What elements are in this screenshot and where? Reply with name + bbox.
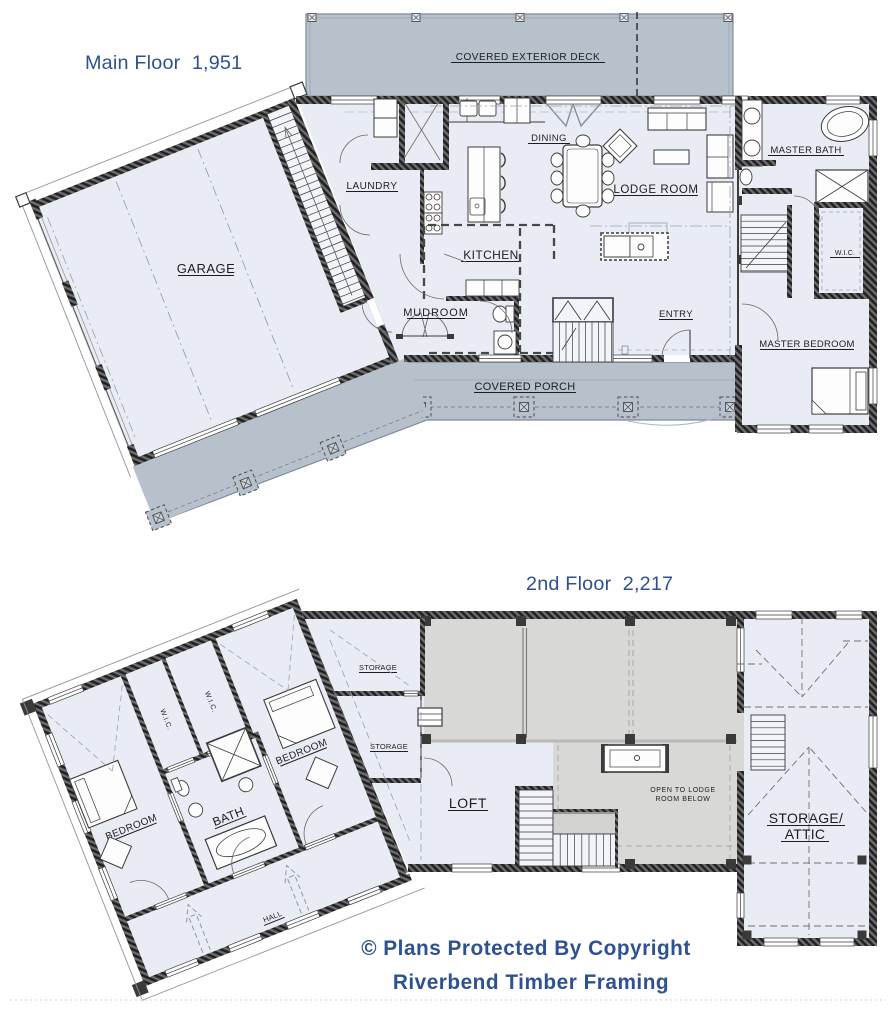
svg-text:STORAGE: STORAGE [370, 742, 408, 751]
svg-text:MASTER BATH: MASTER BATH [770, 145, 841, 156]
svg-text:Riverbend Timber Framing: Riverbend Timber Framing [393, 971, 669, 994]
svg-text:COVERED PORCH: COVERED PORCH [474, 381, 575, 393]
svg-text:LOFT: LOFT [449, 795, 487, 811]
svg-text:2nd Floor 2,217: 2nd Floor 2,217 [526, 573, 673, 595]
svg-text:LODGE ROOM: LODGE ROOM [613, 184, 698, 196]
svg-text:W.I.C.: W.I.C. [835, 250, 855, 257]
svg-text:KITCHEN: KITCHEN [463, 248, 518, 262]
svg-text:ROOM BELOW: ROOM BELOW [655, 796, 710, 803]
svg-text:STORAGE/: STORAGE/ [769, 810, 844, 826]
svg-text:MUDROOM: MUDROOM [403, 307, 469, 319]
svg-text:Main Floor 1,951: Main Floor 1,951 [85, 52, 242, 74]
svg-text:LAUNDRY: LAUNDRY [346, 181, 397, 192]
svg-text:COVERED EXTERIOR DECK: COVERED EXTERIOR DECK [456, 52, 600, 63]
svg-text:ATTIC: ATTIC [785, 826, 825, 842]
svg-text:MASTER BEDROOM: MASTER BEDROOM [759, 339, 855, 350]
svg-text:ENTRY: ENTRY [659, 309, 693, 320]
svg-text:DINING: DINING [531, 133, 567, 144]
svg-text:© Plans Protected By Copyright: © Plans Protected By Copyright [361, 937, 691, 960]
svg-text:STORAGE: STORAGE [359, 663, 397, 672]
svg-text:GARAGE: GARAGE [177, 261, 236, 276]
svg-text:OPEN TO LODGE: OPEN TO LODGE [650, 787, 716, 794]
